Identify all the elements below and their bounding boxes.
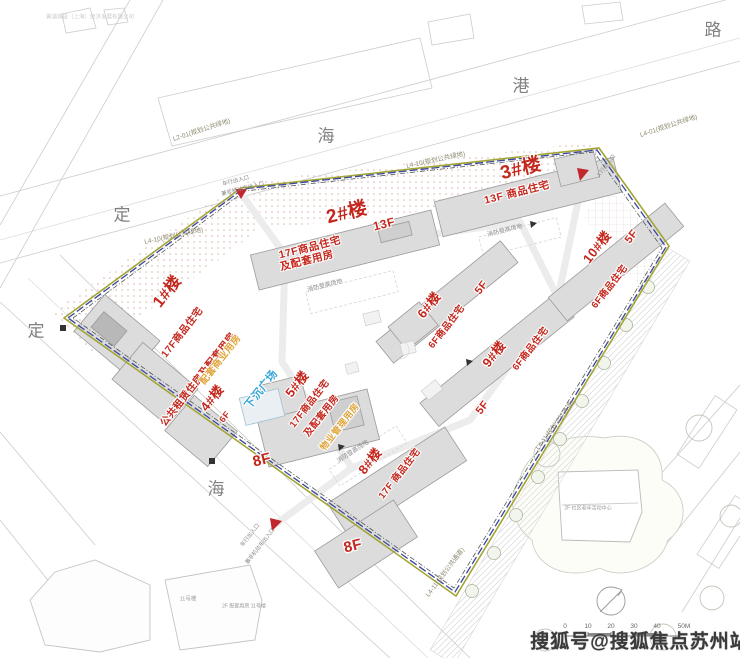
street-char-hai-2: 海	[208, 481, 225, 498]
street-char-gang: 港	[513, 78, 530, 95]
adjacent-community-center-label: 2F 社区老年活动中心	[564, 507, 611, 512]
site-plan-drawing	[0, 0, 740, 658]
street-char-ding-1: 定	[114, 207, 131, 224]
scale-tick-40: 40	[653, 624, 660, 631]
street-char-ding-2: 定	[28, 323, 45, 340]
adjacent-bldg11-label: 11号楼	[180, 597, 197, 603]
adjacent-bldg11-note: 2F 配套用房 11号楼	[222, 605, 266, 610]
floor-label-8f-south: 8F	[342, 536, 364, 555]
sohu-watermark: 搜狐号@搜狐焦点苏州站	[530, 633, 740, 652]
scale-tick-20: 20	[607, 624, 614, 631]
company-note: 黄浦城投（上海）经济发展有限公司	[46, 15, 134, 21]
street-char-hai: 海	[318, 128, 335, 145]
floor-label-8f-west: 8F	[251, 450, 273, 469]
street-char-lu: 路	[705, 22, 722, 39]
scale-tick-30: 30	[630, 624, 637, 631]
scale-tick-0: 0	[563, 624, 567, 631]
scale-tick-10: 10	[584, 624, 591, 631]
scale-tick-50m: 50M	[678, 624, 691, 631]
site-plan-page: 路 港 海 定 定 海 L2-01(规划公共绿地) L4-10(规划公共绿地) …	[0, 0, 740, 658]
